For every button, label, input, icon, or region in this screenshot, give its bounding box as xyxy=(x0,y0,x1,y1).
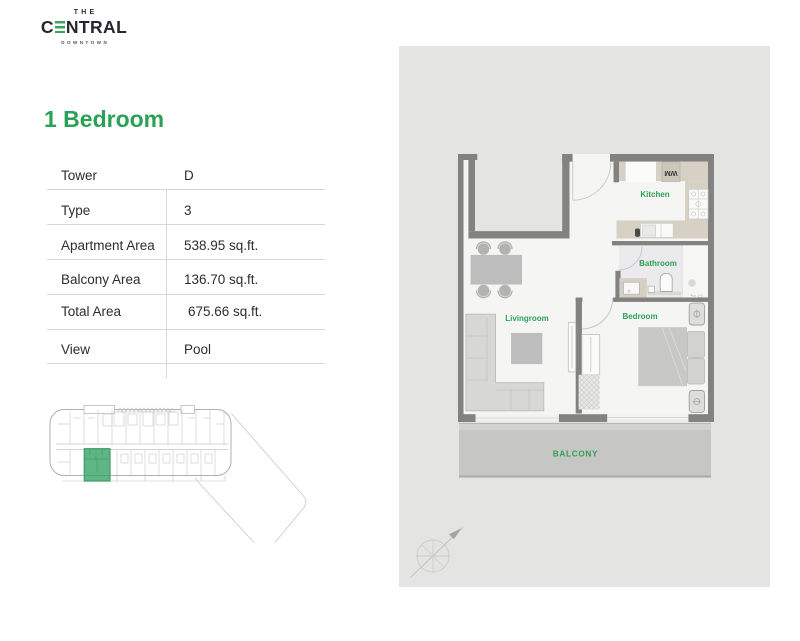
svg-text:Bedroom: Bedroom xyxy=(622,312,657,321)
svg-text:Livingroom: Livingroom xyxy=(505,314,549,323)
svg-text:Bathroom: Bathroom xyxy=(639,259,677,268)
svg-text:WM: WM xyxy=(664,169,677,178)
svg-text:Kitchen: Kitchen xyxy=(640,190,669,199)
svg-text:BALCONY: BALCONY xyxy=(553,450,598,459)
